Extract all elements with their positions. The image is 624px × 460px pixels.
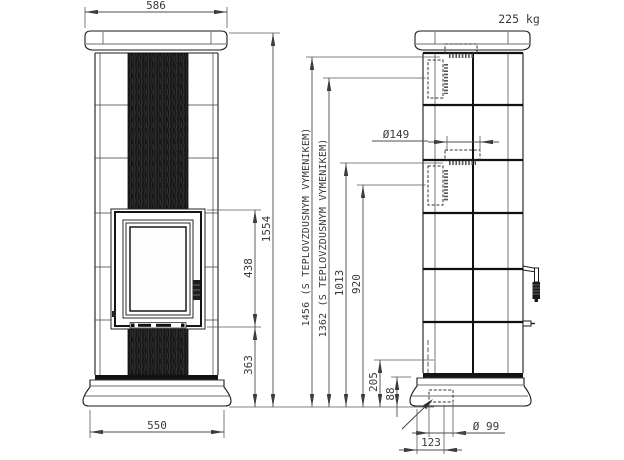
door-glass: [130, 227, 186, 311]
dim-flue-rear-exchanger: 1362 (S TEPLOVZDUSNYM VYMENIKEM): [318, 138, 329, 337]
side-base-band: [423, 373, 523, 378]
air-slider-icon: [130, 323, 186, 329]
dim-air-inlet-height: 205: [367, 372, 380, 392]
stove-dimension-drawing: 586 550 1554 438 363 1456 (S TEPLOVZDUSN…: [0, 0, 624, 460]
side-latch-icon: [523, 321, 535, 326]
dim-flue-rear: 920: [350, 274, 363, 294]
dim-base-height: 363: [242, 355, 255, 375]
dim-flue-top-exchanger: 1456 (S TEPLOVZDUSNYM VYMENIKEM): [301, 127, 312, 326]
side-door-handle-icon: [523, 266, 540, 302]
dim-air-inlet-diameter: Ø 99: [473, 420, 500, 433]
front-base: [83, 380, 231, 406]
front-crown: [85, 31, 227, 50]
side-crown: [415, 31, 530, 50]
dim-width-bottom: 550: [147, 419, 167, 432]
dim-base-edge: 88: [384, 387, 397, 400]
dim-flue-top: 1013: [333, 270, 346, 297]
dim-height-total: 1554: [260, 215, 273, 242]
weight-label: 225 kg: [498, 12, 540, 26]
drawing-canvas: 586 550 1554 438 363 1456 (S TEPLOVZDUSN…: [0, 0, 624, 460]
dim-air-inlet-offset: 123: [421, 436, 441, 449]
side-view: [402, 31, 540, 429]
front-view: [83, 31, 231, 406]
dim-flue-diameter: Ø149: [383, 128, 410, 141]
door-hinge-icon: [112, 311, 116, 317]
front-base-band: [95, 375, 218, 380]
dim-door-height: 438: [242, 258, 255, 278]
stove-door: [111, 209, 205, 329]
dim-width-top: 586: [146, 0, 166, 12]
air-inlet-leader: [402, 399, 433, 429]
side-base: [410, 378, 531, 406]
